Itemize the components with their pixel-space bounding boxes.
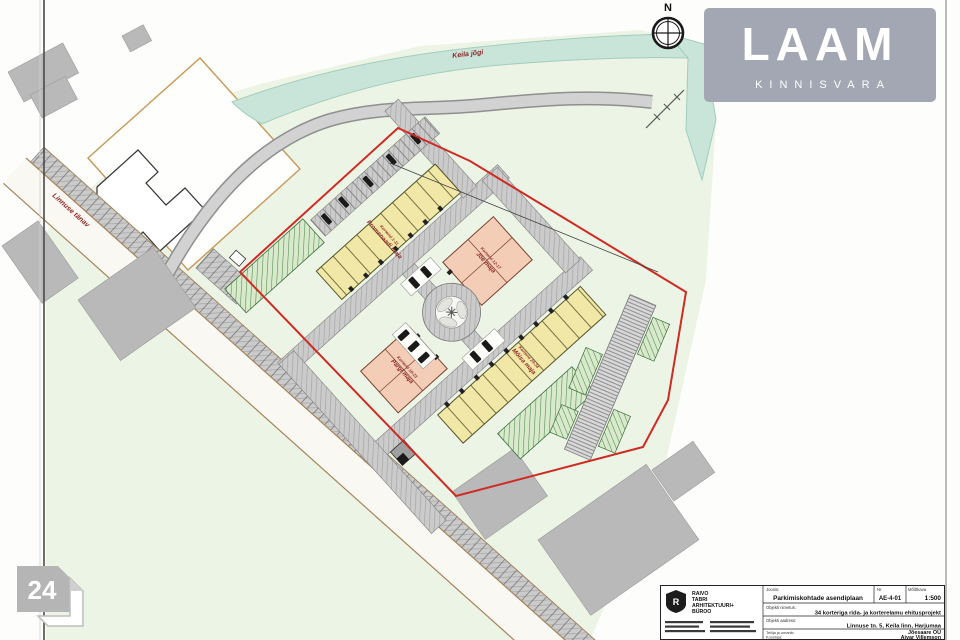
field-nr-value: AE-4-01 (879, 596, 902, 602)
field-object-label: Objekti nimetus: (766, 605, 796, 610)
field-joonis-value: Parkimiskohtade asendiplaan (773, 595, 863, 602)
field-author-value: Aivar Villemson (901, 635, 941, 640)
field-scale-label: Mõõtkava (908, 587, 927, 592)
site-plan-drawing: Promenaadi maja Korterid 1-11 Jõe maja K… (0, 0, 960, 640)
field-object-value: 34 korteriga rida- ja korterelamu ehitus… (815, 611, 941, 617)
bureau-name-line4: BÜROO (692, 608, 711, 615)
brand-wordmark: LAAM (742, 18, 899, 70)
brand-logo: LAAM KINNISVARA (704, 8, 936, 102)
field-address-label: Objekti aadress: (766, 618, 796, 623)
field-scale-value: 1:500 (925, 595, 942, 602)
field-joonis-label: Joonis: (766, 587, 779, 592)
page-number: 24 (28, 575, 57, 605)
field-nr-label: Nr (877, 587, 882, 592)
bureau-fineprint (665, 621, 756, 632)
field-author-label: Koostaja: (766, 635, 782, 640)
title-block: R RAIVO TABRI ARHITEKTUURI+ BÜROO Joonis… (661, 586, 945, 640)
field-address-value: Linnuse tn. 5, Keila linn, Harjumaa (847, 624, 942, 630)
bureau-shield-letter: R (673, 597, 680, 607)
site-plan-sheet: Promenaadi maja Korterid 1-11 Jõe maja K… (0, 0, 960, 640)
compass-north-label: N (664, 2, 672, 14)
brand-subtitle: KINNISVARA (755, 79, 891, 91)
